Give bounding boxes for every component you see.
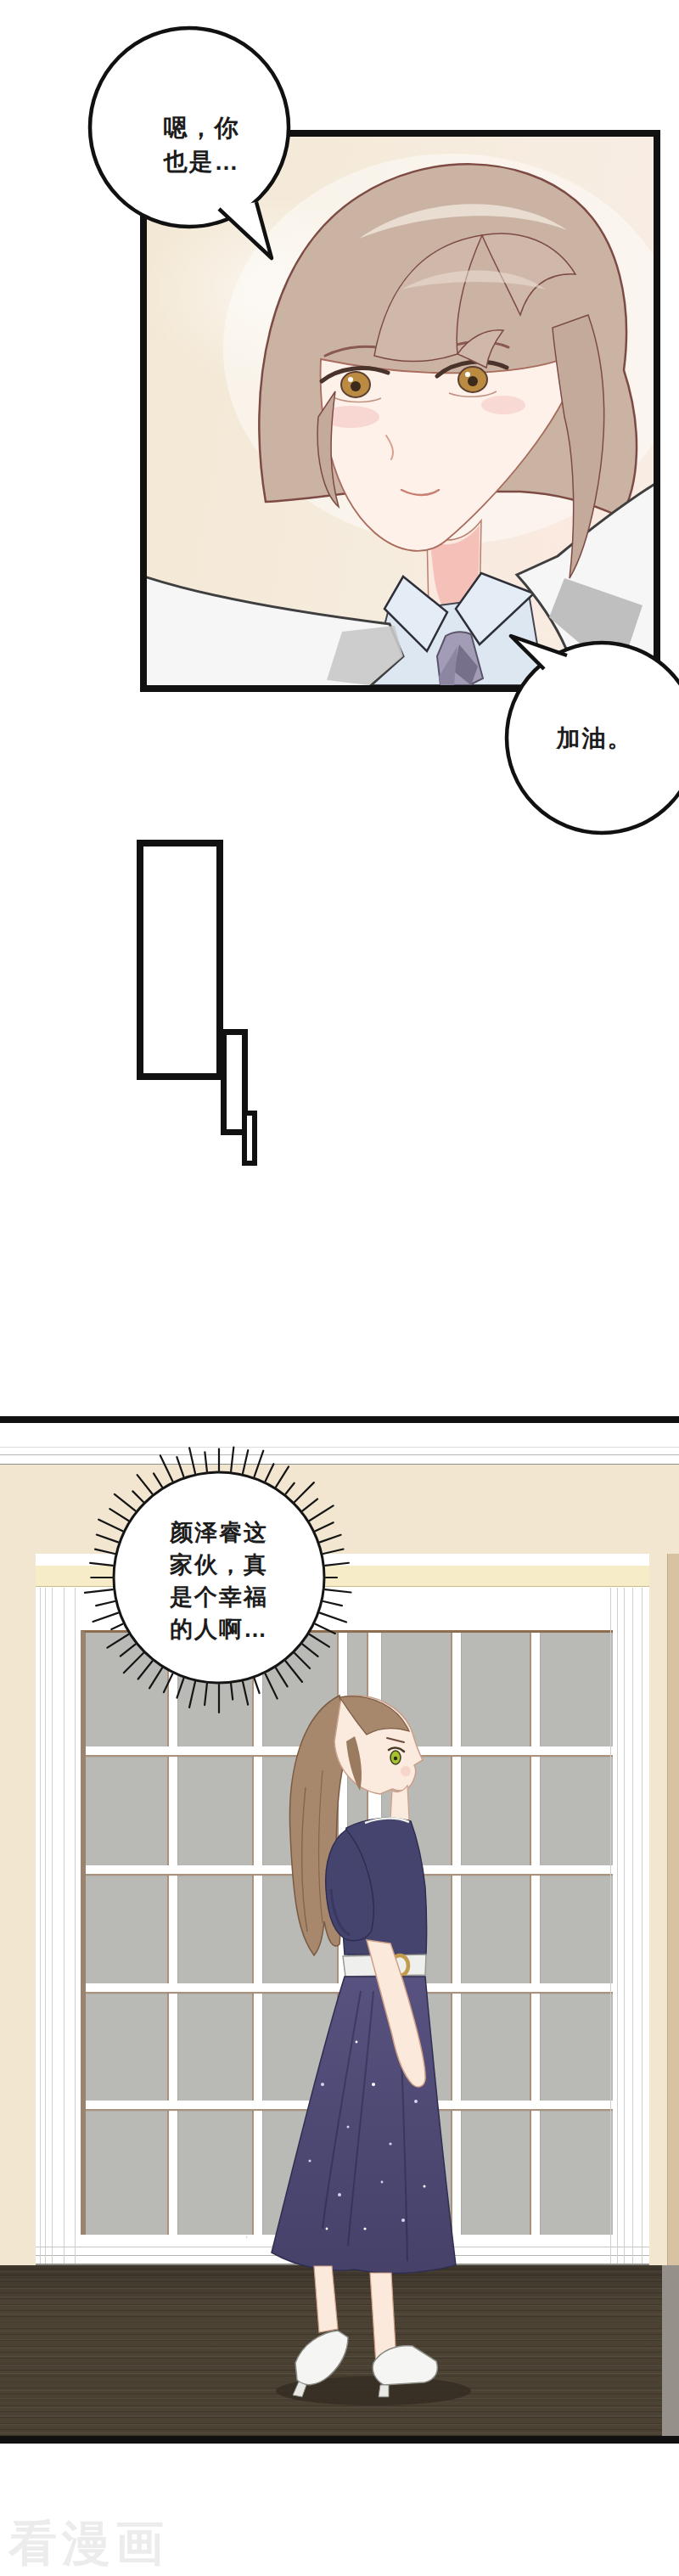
speech-line: 也是… xyxy=(127,145,276,179)
speech-bubble-left-text: 嗯，你 也是… xyxy=(127,111,276,179)
man-pupil-left xyxy=(351,381,361,391)
transition-rect-large xyxy=(137,840,223,1080)
man-eye-highlight-left xyxy=(348,377,353,382)
woman-blush xyxy=(401,1766,411,1776)
comic-page: { "page": {"width": 800, "height": 3034,… xyxy=(0,0,679,2576)
thought-line: 家伙，真 xyxy=(124,1549,314,1581)
woman-shoe-left xyxy=(295,2331,348,2385)
right-wall-strip xyxy=(667,1554,679,2265)
man-pupil-right xyxy=(468,376,478,386)
woman-illustration xyxy=(246,1685,492,2420)
woman-leg-left xyxy=(314,2266,338,2332)
speech-bubble-right-text: 加油。 xyxy=(533,722,656,756)
transition-rect-small xyxy=(242,1111,257,1166)
right-wall-shadow xyxy=(662,2265,679,2436)
watermark: 看漫画 xyxy=(8,2511,169,2576)
thought-burst-text: 颜泽睿这 家伙，真 是个幸福 的人啊… xyxy=(124,1516,314,1645)
thought-line: 是个幸福 xyxy=(124,1581,314,1613)
woman-pupil xyxy=(394,1757,397,1760)
speech-bubble-left-tail xyxy=(219,202,272,258)
man-eye-highlight-right xyxy=(465,372,470,377)
shoe-heel-right xyxy=(379,2385,389,2397)
panel-woman: 颜泽睿这 家伙，真 是个幸福 的人啊… xyxy=(0,1416,679,2444)
man-blush-right xyxy=(481,396,525,414)
thought-line: 的人啊… xyxy=(124,1613,314,1645)
thought-line: 颜泽睿这 xyxy=(124,1516,314,1549)
speech-line: 嗯，你 xyxy=(127,111,276,145)
